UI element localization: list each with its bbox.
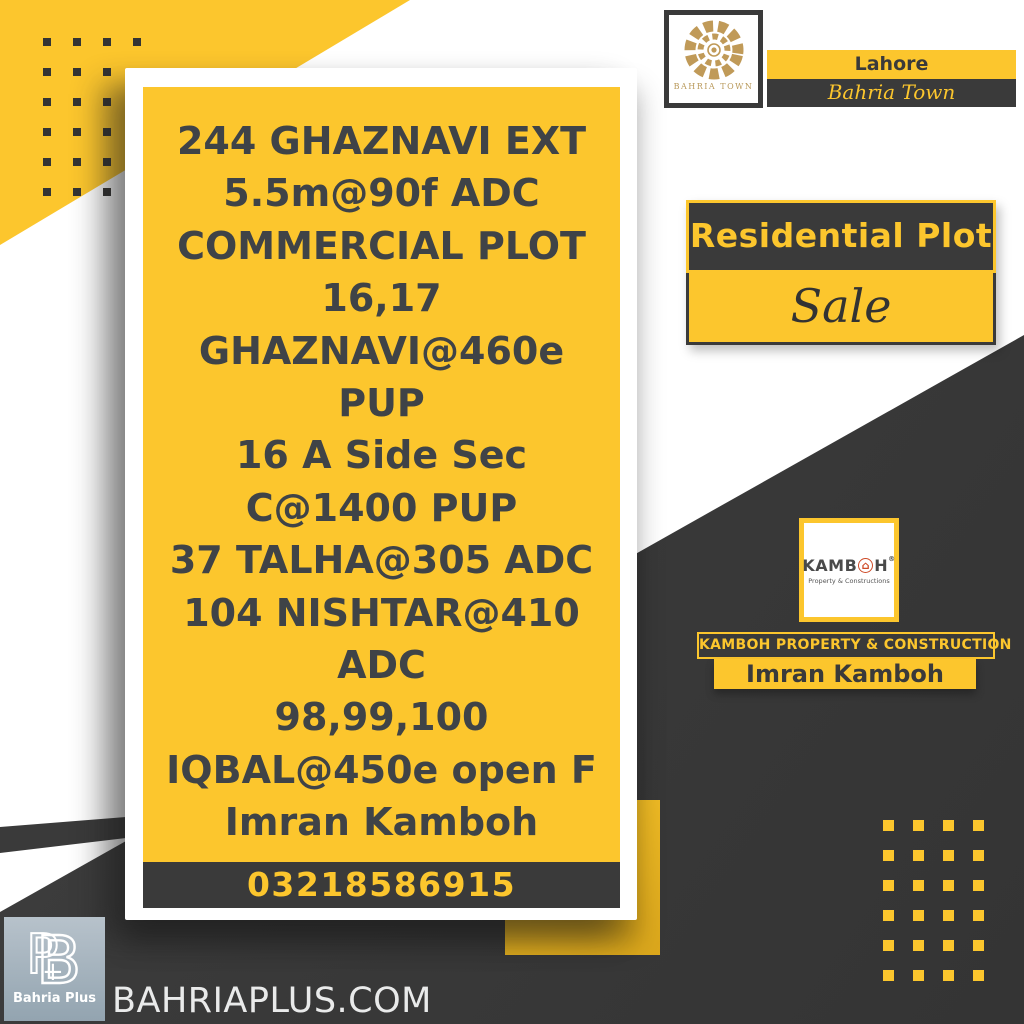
pattern-dot — [73, 98, 81, 106]
plot-type-badge: Residential Plot Sale — [686, 200, 996, 345]
listing-line: COMMERCIAL PLOT — [143, 220, 620, 272]
agent-name-bar: Imran Kamboh — [714, 659, 976, 689]
city-bar: Lahore — [767, 50, 1016, 79]
pattern-dot — [73, 128, 81, 136]
pattern-dot — [883, 910, 894, 921]
pattern-dot — [43, 128, 51, 136]
pattern-dot — [943, 940, 954, 951]
pattern-dot — [973, 820, 984, 831]
pattern-dot — [913, 910, 924, 921]
pattern-dot — [913, 970, 924, 981]
pattern-dot — [943, 880, 954, 891]
house-icon: ⌂ — [858, 558, 873, 573]
pattern-dot — [943, 820, 954, 831]
pattern-dot — [883, 880, 894, 891]
pattern-dot — [943, 850, 954, 861]
pattern-dot — [883, 940, 894, 951]
brand-bar: Bahria Town — [767, 79, 1016, 107]
kamboh-wordmark: KAMB ⌂ H ® — [802, 556, 895, 575]
registered-mark: ® — [888, 555, 896, 563]
pattern-dot — [73, 158, 81, 166]
pattern-dot — [43, 98, 51, 106]
listing-line: 104 NISHTAR@410 — [143, 587, 620, 639]
bahria-plus-caption: Bahria Plus — [13, 991, 96, 1006]
kamboh-logo: KAMB ⌂ H ® Property & Constructions — [799, 518, 899, 622]
pattern-dot — [973, 970, 984, 981]
listing-line: PUP — [143, 377, 620, 429]
listing-lines: 244 GHAZNAVI EXT5.5m@90f ADCCOMMERCIAL P… — [143, 87, 620, 862]
pattern-dot — [133, 38, 141, 46]
pattern-dot — [973, 910, 984, 921]
pattern-dot — [973, 940, 984, 951]
listing-line: 98,99,100 — [143, 691, 620, 743]
pattern-dot — [913, 820, 924, 831]
bahria-plus-monogram-icon: P B + — [20, 917, 90, 993]
bahria-town-logo-caption: BAHRIA TOWN — [674, 82, 754, 91]
pattern-dot — [973, 850, 984, 861]
listing-line: 244 GHAZNAVI EXT — [143, 115, 620, 167]
pattern-dot — [943, 910, 954, 921]
kamboh-company-bar: KAMBOH PROPERTY & CONSTRUCTION — [697, 632, 995, 659]
pattern-dot — [103, 98, 111, 106]
dots-bottom-right — [883, 820, 1003, 1000]
pattern-dot — [913, 940, 924, 951]
pattern-dot — [73, 188, 81, 196]
listing-line: IQBAL@450e open F — [143, 744, 620, 796]
bahria-town-logo: BAHRIA TOWN — [664, 10, 763, 108]
kamboh-logo-subtitle: Property & Constructions — [808, 577, 889, 585]
pattern-dot — [103, 188, 111, 196]
pattern-dot — [73, 38, 81, 46]
kamboh-word-suffix: H — [874, 556, 888, 575]
website-url: BAHRIAPLUS.COM — [112, 981, 432, 1021]
listing-line: 5.5m@90f ADC — [143, 167, 620, 219]
listing-card: 244 GHAZNAVI EXT5.5m@90f ADCCOMMERCIAL P… — [125, 68, 637, 920]
listing-line: 37 TALHA@305 ADC — [143, 534, 620, 586]
pattern-dot — [103, 158, 111, 166]
pattern-dot — [43, 188, 51, 196]
listing-line: GHAZNAVI@460e — [143, 325, 620, 377]
bahria-plus-logo: P B + Bahria Plus — [4, 917, 105, 1021]
property-ad-poster: 244 GHAZNAVI EXT5.5m@90f ADCCOMMERCIAL P… — [0, 0, 1024, 1024]
pattern-dot — [973, 880, 984, 891]
pattern-dot — [913, 850, 924, 861]
pattern-dot — [883, 850, 894, 861]
pattern-dot — [43, 158, 51, 166]
bahria-town-seal-icon — [683, 19, 745, 81]
pattern-dot — [73, 68, 81, 76]
listing-line: 16,17 — [143, 272, 620, 324]
pattern-dot — [943, 970, 954, 981]
pattern-dot — [43, 68, 51, 76]
sale-label: Sale — [686, 273, 996, 345]
kamboh-word-prefix: KAMB — [802, 556, 857, 575]
svg-text:+: + — [42, 957, 64, 987]
listing-line: ADC — [143, 639, 620, 691]
pattern-dot — [883, 820, 894, 831]
pattern-dot — [103, 38, 111, 46]
pattern-dot — [913, 880, 924, 891]
listing-line: C@1400 PUP — [143, 482, 620, 534]
pattern-dot — [883, 970, 894, 981]
pattern-dot — [103, 68, 111, 76]
pattern-dot — [103, 128, 111, 136]
plot-type-label: Residential Plot — [686, 200, 996, 273]
listing-line: 16 A Side Sec — [143, 429, 620, 481]
pattern-dot — [43, 38, 51, 46]
phone-number: 03218586915 — [143, 862, 620, 908]
listing-line: Imran Kamboh — [143, 796, 620, 848]
